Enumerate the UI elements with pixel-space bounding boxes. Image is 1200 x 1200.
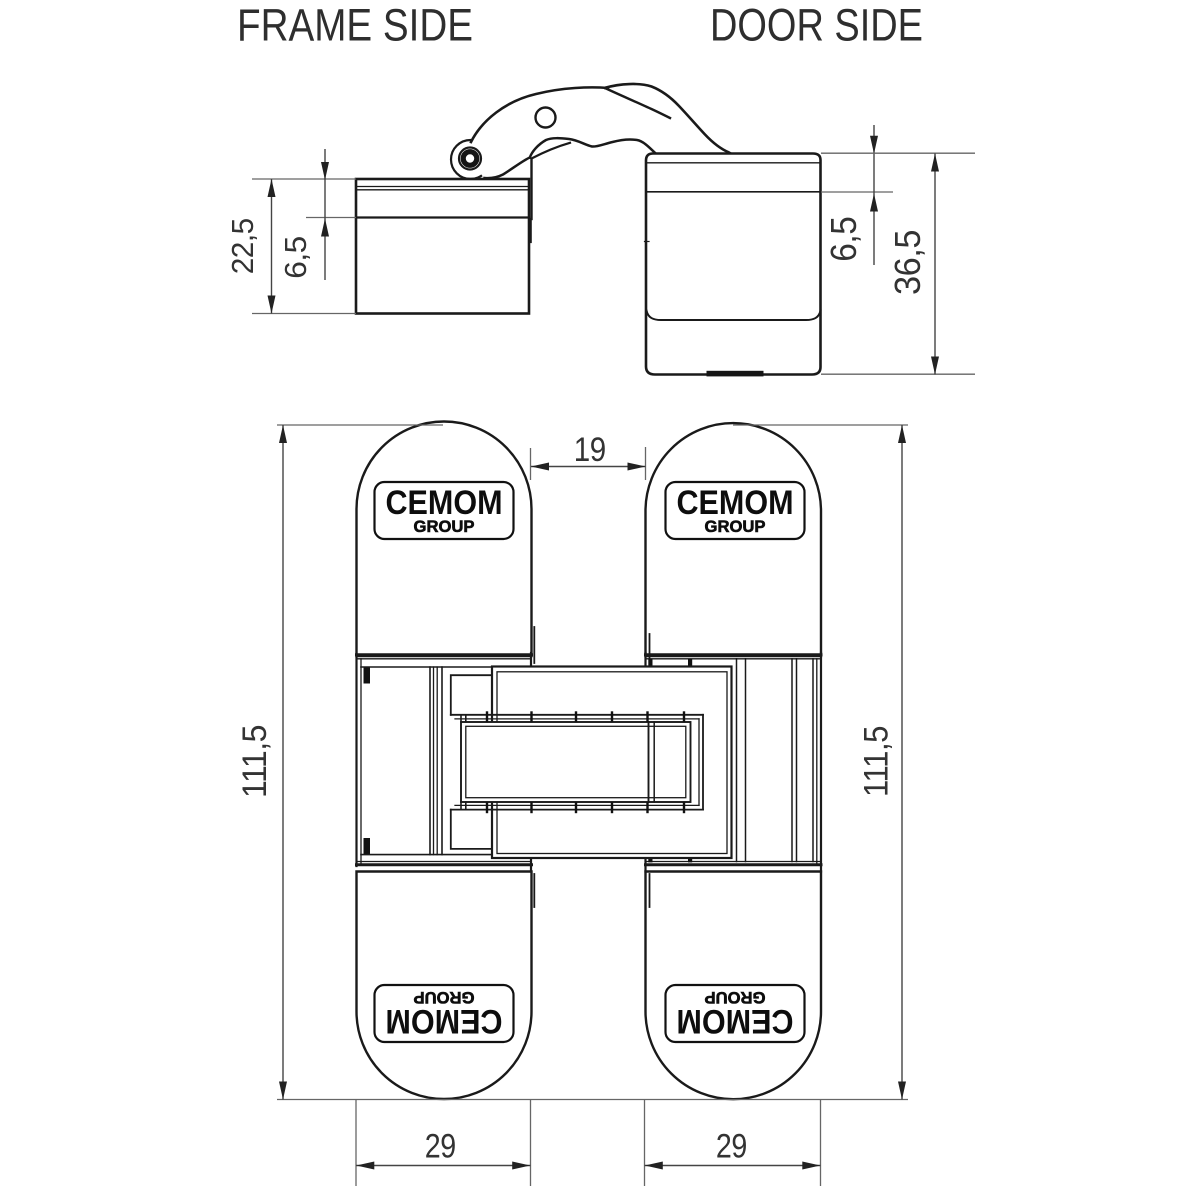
svg-text:GROUP: GROUP bbox=[414, 988, 475, 1007]
svg-text:36,5: 36,5 bbox=[887, 230, 928, 295]
svg-text:111,5: 111,5 bbox=[236, 725, 274, 798]
svg-text:GROUP: GROUP bbox=[414, 517, 475, 536]
svg-text:29: 29 bbox=[425, 1128, 456, 1166]
svg-text:19: 19 bbox=[574, 431, 606, 469]
svg-text:DOOR SIDE: DOOR SIDE bbox=[710, 0, 923, 51]
svg-text:GROUP: GROUP bbox=[705, 988, 766, 1007]
svg-text:29: 29 bbox=[716, 1128, 747, 1166]
svg-text:GROUP: GROUP bbox=[705, 517, 766, 536]
svg-text:6,5: 6,5 bbox=[823, 217, 864, 262]
svg-text:6,5: 6,5 bbox=[278, 236, 313, 279]
svg-text:111,5: 111,5 bbox=[858, 726, 896, 797]
svg-text:FRAME SIDE: FRAME SIDE bbox=[237, 0, 473, 51]
svg-text:22,5: 22,5 bbox=[225, 218, 260, 274]
